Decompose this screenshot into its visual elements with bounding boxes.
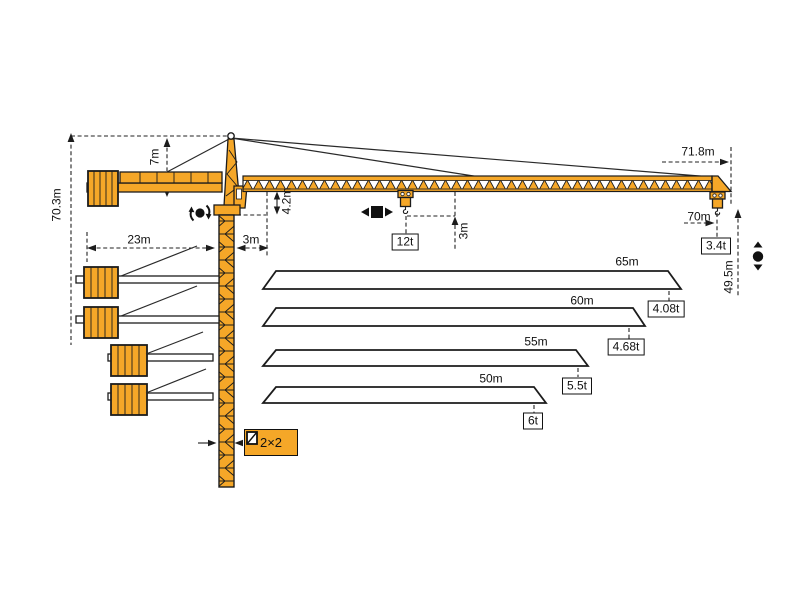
slew-offset-label: 3m (243, 234, 260, 247)
tower-above-jib-label: 7m (149, 149, 162, 166)
trolley-mid (398, 191, 413, 214)
variant-length-65: 65m (615, 256, 638, 269)
tower-mast (219, 215, 234, 487)
hook-height-label: 49.5m (723, 260, 736, 293)
tie-rods (167, 138, 712, 177)
jib-depth-label: 4.2m (281, 188, 294, 215)
variant-tipload-65: 4.08t (648, 301, 685, 318)
variant-tipload-50: 6t (523, 413, 543, 430)
counterweight-blocks (88, 171, 118, 206)
main-jib (243, 176, 731, 192)
trolley-travel-icon (361, 206, 393, 218)
hook-icon (403, 207, 407, 214)
apex-pin (228, 133, 234, 139)
counterjib-radius-label: 23m (127, 234, 150, 247)
variant-length-60: 60m (570, 295, 593, 308)
mast-section-label: 2×2 (260, 435, 282, 450)
max-radius-label: 71.8m (681, 146, 714, 159)
mast-section-badge: 2×2 (244, 429, 298, 456)
variant-length-55: 55m (524, 336, 547, 349)
variant-length-50: 50m (479, 373, 502, 386)
max-capacity-badge: 12t (392, 234, 419, 251)
hook-clearance-label: 3m (458, 223, 471, 240)
slewing-platform (214, 205, 240, 215)
jib-variant-outlines (263, 271, 681, 403)
variant-tipload-55: 5.5t (562, 378, 592, 395)
counter-jib (87, 171, 222, 206)
slewing-icon (189, 206, 212, 221)
counterweight-variants (76, 246, 219, 415)
variant-tipload-60: 4.68t (608, 339, 645, 356)
hook-travel-icon (753, 242, 763, 271)
mast-section-icon (245, 430, 259, 446)
total-height-label: 70.3m (51, 188, 64, 221)
crane-specification-diagram: 70.3m 7m 23m 3m 4.2m 3m 71.8m 70m 49.5m … (0, 0, 800, 600)
hook-radius-label: 70m (687, 211, 710, 224)
tip-capacity-badge: 3.4t (701, 238, 731, 255)
trolley-tip (710, 192, 725, 215)
